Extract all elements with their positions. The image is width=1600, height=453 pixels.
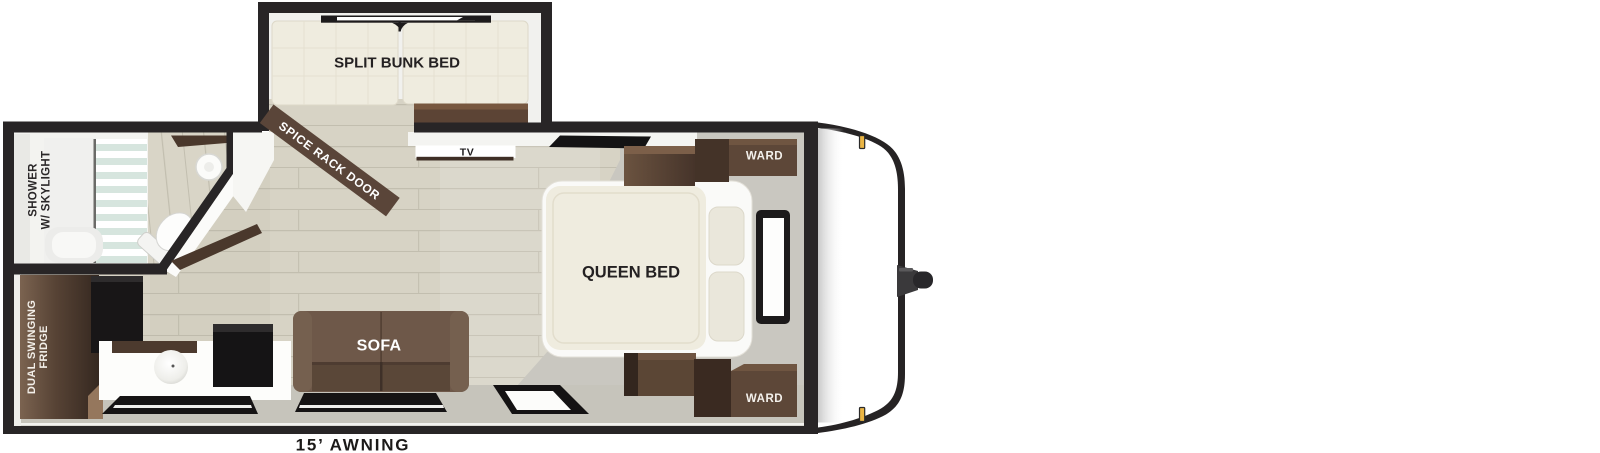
svg-text:SHOWER: SHOWER xyxy=(28,163,40,217)
svg-text:SOFA: SOFA xyxy=(357,338,402,355)
svg-text:W/ SKYLIGHT: W/ SKYLIGHT xyxy=(41,151,53,230)
svg-text:15’ AWNING: 15’ AWNING xyxy=(296,436,411,453)
svg-text:WARD: WARD xyxy=(746,393,783,405)
svg-text:FRIDGE: FRIDGE xyxy=(38,325,50,368)
svg-text:SPLIT BUNK BED: SPLIT BUNK BED xyxy=(334,55,460,72)
svg-text:TV: TV xyxy=(460,147,474,159)
svg-text:WARD: WARD xyxy=(746,151,783,163)
svg-text:QUEEN BED: QUEEN BED xyxy=(582,264,680,282)
svg-text:DUAL SWINGING: DUAL SWINGING xyxy=(26,300,38,394)
